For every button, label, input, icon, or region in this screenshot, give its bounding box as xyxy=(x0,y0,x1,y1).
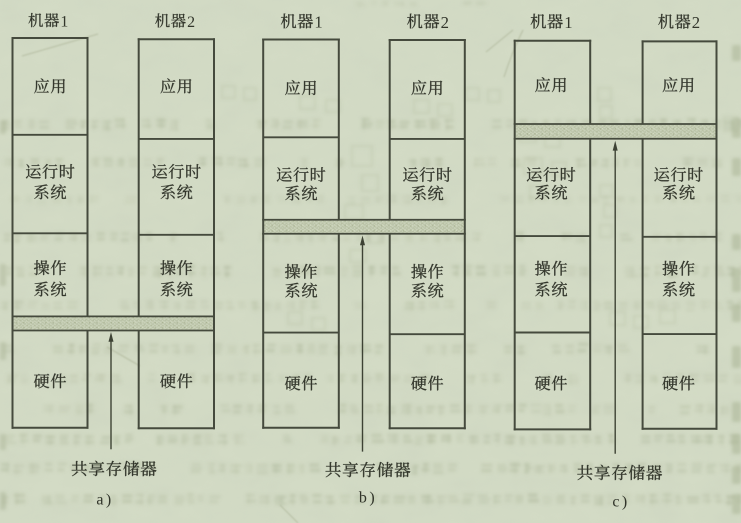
svg-text:1: 1 xyxy=(564,13,572,32)
svg-text:2: 2 xyxy=(187,14,195,31)
svg-text:b): b) xyxy=(359,490,377,507)
svg-text:1: 1 xyxy=(60,14,68,31)
svg-text:a): a) xyxy=(96,491,113,508)
svg-text:2: 2 xyxy=(441,13,449,32)
svg-text:2: 2 xyxy=(692,13,700,32)
svg-text:c): c) xyxy=(612,493,629,510)
svg-text:1: 1 xyxy=(314,13,322,32)
